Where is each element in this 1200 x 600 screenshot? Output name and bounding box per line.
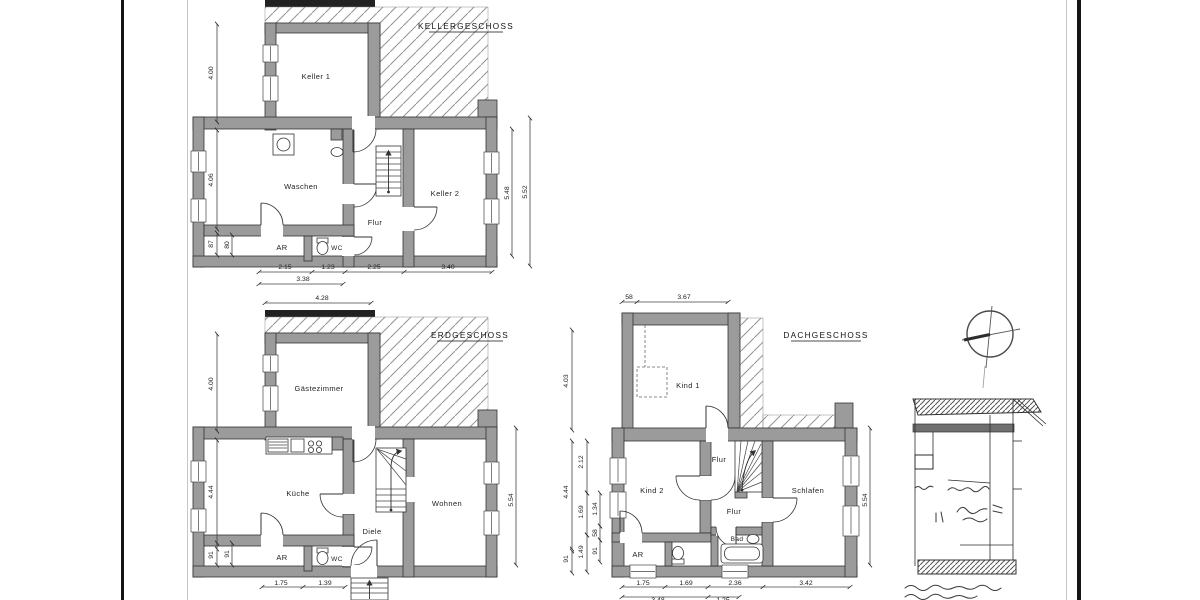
room-label-kind2: Kind 2 <box>640 486 664 495</box>
dim-label: 91 <box>592 547 599 555</box>
dg-stair <box>735 441 762 492</box>
window <box>722 565 748 578</box>
eg-stair <box>376 448 406 512</box>
window <box>610 492 626 518</box>
dg-dashed-dormer <box>637 325 667 397</box>
room-label-ar: AR <box>276 243 287 252</box>
dim-label: 2.15 <box>278 264 291 271</box>
blueprint-page: Keller 1 Waschen Keller 2 Flur AR WC KEL… <box>0 0 1200 600</box>
dim-label: 3.38 <box>296 276 309 283</box>
floor-title-dachgeschoss: DACHGESCHOSS <box>783 331 868 340</box>
dim-label: 3.42 <box>799 580 812 587</box>
window <box>191 199 206 222</box>
sink <box>331 148 343 157</box>
window <box>610 458 626 484</box>
dim-label: 1.23 <box>321 264 334 271</box>
window <box>191 151 206 172</box>
kg-stair <box>376 146 401 196</box>
floor-title-kellergeschoss: KELLERGESCHOSS <box>418 22 514 31</box>
dim-label: 5.54 <box>862 493 869 506</box>
page-frame-left <box>121 0 124 600</box>
room-label-wc: WC <box>331 556 343 563</box>
dim-label: 1.49 <box>578 545 585 558</box>
dim-label: 80 <box>224 241 231 249</box>
window <box>263 355 278 372</box>
room-label-waschen: Waschen <box>284 182 318 191</box>
plan-kellergeschoss: Keller 1 Waschen Keller 2 Flur AR WC KEL… <box>180 0 550 300</box>
dim-label: 4.44 <box>563 485 570 498</box>
room-label-kueche: Küche <box>286 489 309 498</box>
room-label-gaestezimmer: Gästezimmer <box>295 384 344 393</box>
eg-kitchen-counter <box>266 437 332 454</box>
dim-label: 58 <box>625 294 633 301</box>
window <box>484 511 499 535</box>
window <box>191 509 206 532</box>
eg-entry-stair <box>351 578 388 600</box>
room-label-keller2: Keller 2 <box>431 189 460 198</box>
sink <box>747 535 759 544</box>
window <box>191 461 206 482</box>
dim-label: 87 <box>208 240 215 248</box>
room-label-wohnen: Wohnen <box>432 499 462 508</box>
dim-label: 5.48 <box>504 186 511 199</box>
dim-label: 5.54 <box>508 493 515 506</box>
dim-label: 1.39 <box>318 580 331 587</box>
dim-label: 4.00 <box>208 377 215 390</box>
page-frame-right <box>1077 0 1081 600</box>
compass-circle <box>967 311 1013 357</box>
dim-label: 3.40 <box>441 264 454 271</box>
dim-label: 1.69 <box>578 505 585 518</box>
window <box>263 45 278 62</box>
dim-label: 4.03 <box>563 374 570 387</box>
dim-label: 1.75 <box>274 580 287 587</box>
north-compass <box>950 298 1030 390</box>
room-label-flur-upper: Flur <box>712 455 727 464</box>
plan-dachgeschoss: Kind 1 Kind 2 Flur Flur Schlafen Bad AR … <box>545 280 890 600</box>
site-handwriting <box>905 486 1002 599</box>
toilet <box>672 547 684 565</box>
dim-label: 2.12 <box>578 455 585 468</box>
plan-erdgeschoss: Gästezimmer Küche Wohnen Diele AR WC ERD… <box>180 290 550 600</box>
dim-label: 91 <box>563 555 570 563</box>
dim-label: 58 <box>592 529 599 537</box>
toilet <box>317 548 328 565</box>
dim-label: 91 <box>224 550 231 558</box>
room-label-ar: AR <box>276 553 287 562</box>
window <box>843 456 859 486</box>
window <box>484 462 499 484</box>
room-label-diele: Diele <box>362 527 381 536</box>
dim-label: 5.52 <box>522 185 529 198</box>
inner-frame-right <box>1066 0 1067 600</box>
eg-fixtures <box>317 548 328 565</box>
dim-label: 1.34 <box>592 502 599 515</box>
window <box>484 152 499 174</box>
window <box>263 76 278 101</box>
dim-label: 3.67 <box>677 294 690 301</box>
room-label-bad: Bad <box>731 536 744 543</box>
toilet <box>317 238 328 255</box>
dim-label: 1.69 <box>679 580 692 587</box>
room-label-keller1: Keller 1 <box>302 72 331 81</box>
window <box>484 199 499 224</box>
room-label-ar: AR <box>632 550 643 559</box>
dim-label: 4.28 <box>315 295 328 302</box>
dim-label: 4.00 <box>208 66 215 79</box>
room-label-wc: WC <box>331 245 343 252</box>
floor-title-erdgeschoss: ERDGESCHOSS <box>431 331 509 340</box>
room-label-schlafen: Schlafen <box>792 486 824 495</box>
site-building <box>915 455 933 469</box>
dim-label: 2.36 <box>728 580 741 587</box>
room-label-flur-lower: Flur <box>727 507 742 516</box>
dim-label: 1.75 <box>636 580 649 587</box>
dim-label: 4.06 <box>208 173 215 186</box>
window <box>263 386 278 411</box>
window <box>630 565 656 578</box>
washing-machine <box>273 134 294 155</box>
dim-label: 91 <box>208 551 215 559</box>
room-label-kind1: Kind 1 <box>676 381 700 390</box>
dim-label: 2.25 <box>367 264 380 271</box>
room-label-flur: Flur <box>368 218 383 227</box>
site-plan-sketch <box>900 392 1050 600</box>
bathtub <box>721 544 763 563</box>
window <box>843 506 859 536</box>
dim-label: 4.44 <box>208 485 215 498</box>
